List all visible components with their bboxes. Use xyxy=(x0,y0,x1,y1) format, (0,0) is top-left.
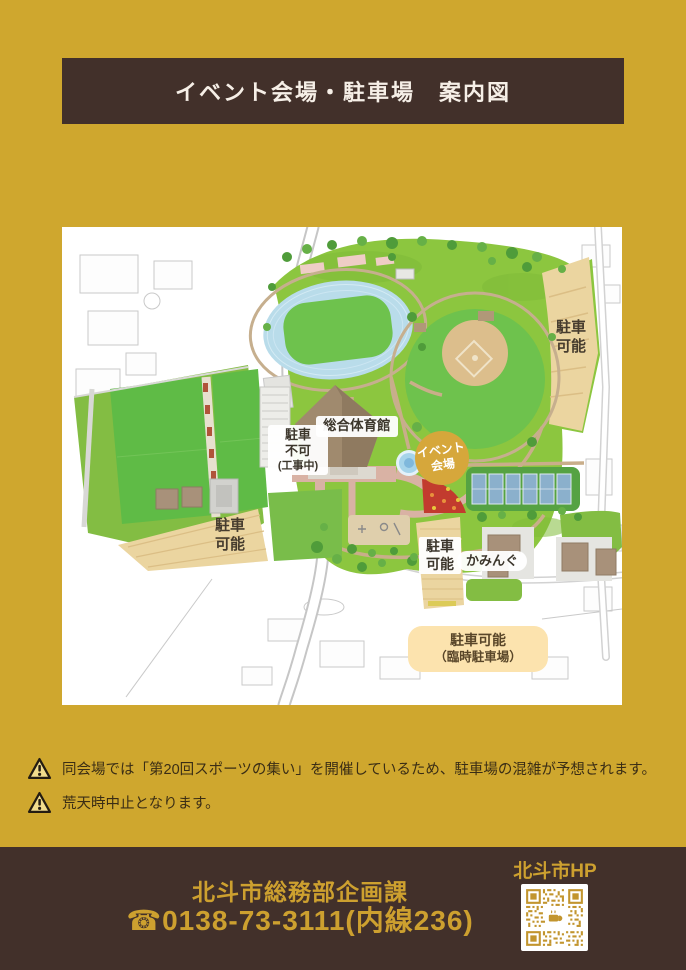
tennis-courts xyxy=(466,467,580,511)
phone-number: ☎0138-73-3111(内線236) xyxy=(40,899,560,939)
qr-code-icon xyxy=(524,887,585,948)
track-office-building xyxy=(396,269,414,279)
temporary-parking-label: 駐車可能 （臨時駐車場） xyxy=(408,626,548,672)
notice-row-cancellation: 荒天時中止となります。 xyxy=(27,791,667,814)
qr-code xyxy=(521,884,588,951)
page-title: イベント会場・駐車場 案内図 xyxy=(175,75,511,107)
homepage-label: 北斗市HP xyxy=(500,856,610,883)
playground xyxy=(348,515,410,545)
kamingu-label: かみんぐ xyxy=(457,551,527,571)
warning-icon xyxy=(27,791,52,814)
warning-icon xyxy=(27,757,52,780)
no-parking-label: 駐車 不可 (工事中) xyxy=(268,425,328,475)
flyer-page: イベント会場・駐車場 案内図 xyxy=(0,0,686,970)
parking-available-label-west: 駐車 可能 xyxy=(211,517,249,555)
notice-row-crowding: 同会場では「第20回スポーツの集い」を開催しているため、駐車場の混雑が予想されま… xyxy=(27,757,667,780)
parking-available-label-ne: 駐車 可能 xyxy=(552,319,590,357)
lawn-patch xyxy=(268,489,342,561)
south-green xyxy=(466,579,522,601)
header-bar: イベント会場・駐車場 案内図 xyxy=(62,58,624,124)
notice-text: 同会場では「第20回スポーツの集い」を開催しているため、駐車場の混雑が予想されま… xyxy=(62,758,656,779)
notice-text: 荒天時中止となります。 xyxy=(62,792,220,813)
parking-available-label-south: 駐車 可能 xyxy=(419,537,461,574)
footer-bar: 北斗市総務部企画課 ☎0138-73-3111(内線236) 北斗市HP xyxy=(0,847,686,970)
map-panel: 駐車 可能 総合体育館 駐車 不可 (工事中) イベント 会場 駐車 可能 駐車… xyxy=(62,227,622,705)
gymnasium-label: 総合体育館 xyxy=(316,416,398,437)
